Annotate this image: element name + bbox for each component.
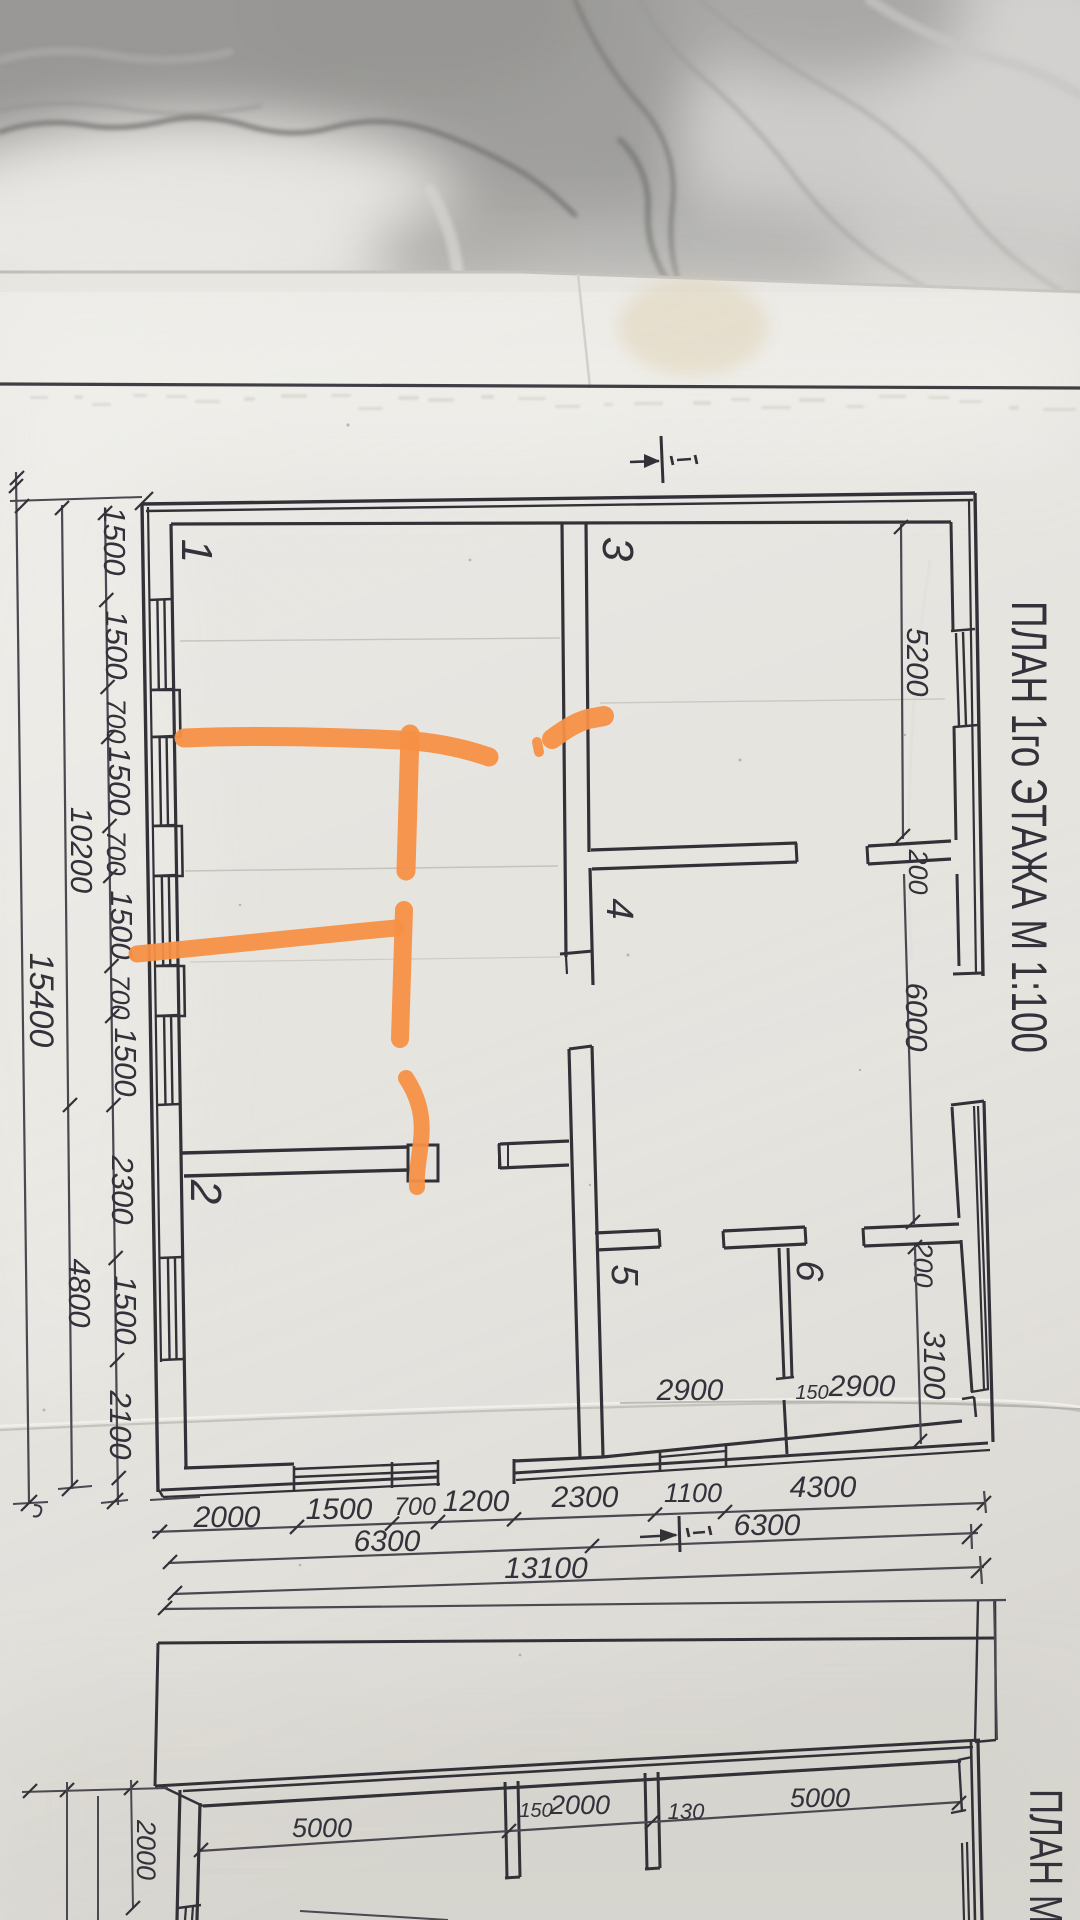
svg-text:1500: 1500 <box>99 611 134 680</box>
svg-text:15400: 15400 <box>22 953 60 1048</box>
svg-text:150: 150 <box>795 1382 828 1404</box>
svg-text:2000: 2000 <box>549 1790 610 1820</box>
svg-text:5: 5 <box>603 1264 645 1286</box>
svg-text:200: 200 <box>908 1241 938 1287</box>
svg-text:10200: 10200 <box>64 807 99 893</box>
svg-text:2300: 2300 <box>105 1155 140 1225</box>
svg-text:2000: 2000 <box>131 1819 161 1880</box>
svg-text:1500: 1500 <box>306 1493 373 1526</box>
svg-text:5000: 5000 <box>292 1813 352 1843</box>
svg-text:4: 4 <box>598 898 640 919</box>
svg-text:2900: 2900 <box>656 1374 724 1407</box>
svg-text:700: 700 <box>101 830 131 875</box>
svg-text:4300: 4300 <box>790 1471 857 1504</box>
svg-text:6000: 6000 <box>899 983 934 1052</box>
svg-text:150: 150 <box>519 1800 552 1822</box>
svg-text:3: 3 <box>593 537 642 562</box>
svg-text:ПЛАН МА: ПЛАН МА <box>1020 1789 1072 1920</box>
svg-text:700: 700 <box>101 698 131 743</box>
svg-text:700: 700 <box>105 974 135 1019</box>
svg-text:2: 2 <box>181 1179 230 1204</box>
svg-text:6300: 6300 <box>354 1525 421 1558</box>
svg-text:1: 1 <box>172 539 221 563</box>
svg-text:2300: 2300 <box>551 1481 619 1514</box>
svg-text:1100: 1100 <box>664 1478 722 1508</box>
svg-text:1200: 1200 <box>443 1485 510 1518</box>
svg-text:3100: 3100 <box>917 1331 952 1400</box>
svg-text:2000: 2000 <box>193 1501 261 1534</box>
svg-text:200: 200 <box>903 848 933 894</box>
svg-text:6: 6 <box>788 1260 830 1282</box>
svg-text:ПЛАН 1го ЭТАЖА М 1:100: ПЛАН 1го ЭТАЖА М 1:100 <box>1001 601 1057 1053</box>
svg-text:1500: 1500 <box>102 747 137 816</box>
svg-text:5200: 5200 <box>900 628 935 697</box>
svg-text:2100: 2100 <box>103 1390 138 1460</box>
svg-text:4800: 4800 <box>62 1259 97 1328</box>
svg-text:5000: 5000 <box>790 1783 850 1813</box>
svg-text:700: 700 <box>394 1493 436 1521</box>
svg-text:2900: 2900 <box>828 1370 896 1403</box>
svg-text:130: 130 <box>668 1799 705 1824</box>
svg-text:1500: 1500 <box>97 507 132 576</box>
svg-text:1500: 1500 <box>108 1276 143 1345</box>
svg-text:13100: 13100 <box>504 1552 588 1585</box>
svg-text:1500: 1500 <box>108 1028 143 1097</box>
svg-text:6300: 6300 <box>734 1509 801 1542</box>
